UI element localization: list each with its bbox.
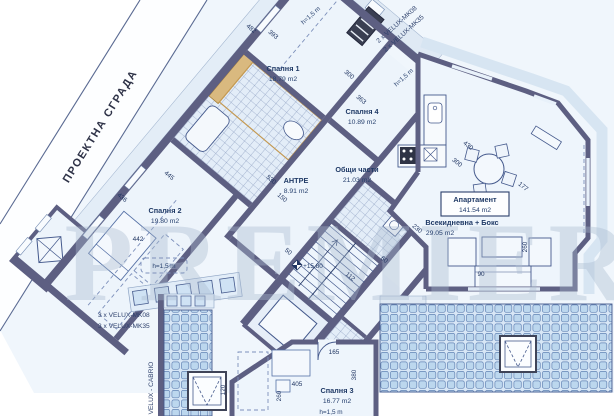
bedroom2-area: 19.80 m2 bbox=[151, 218, 180, 225]
dim-260b: 260 bbox=[276, 390, 283, 401]
floor-plan-page: ПРОЕКТНА СГРАДА bbox=[0, 0, 614, 416]
entry-name: АНТРЕ bbox=[284, 176, 309, 185]
dining-table bbox=[474, 154, 504, 184]
living-area: 29.05 m2 bbox=[426, 230, 455, 237]
living-name: Всекидневна + Бокс bbox=[425, 218, 498, 227]
bedroom1-area: 18.79 m2 bbox=[269, 76, 298, 83]
height-note-4: h=1,5 m bbox=[319, 409, 342, 416]
apartment-name: Апартамент bbox=[453, 195, 497, 204]
skylight-south bbox=[500, 336, 536, 372]
bedroom2-name: Спалня 2 bbox=[148, 206, 181, 215]
dresser bbox=[272, 350, 310, 376]
bedroom3-area: 16.77 m2 bbox=[323, 398, 352, 405]
dim-405: 405 bbox=[292, 381, 303, 388]
bedroom3-name: Спалня 3 bbox=[320, 386, 353, 395]
bay-skylight bbox=[37, 237, 63, 263]
dim-260a: 260 bbox=[522, 241, 529, 252]
nightstand bbox=[276, 380, 290, 392]
velux-left-label-1: 3 x VELUX-MK08 bbox=[98, 312, 150, 319]
common-area: 21.03 m2 bbox=[343, 177, 372, 184]
height-note-3: h=1,5 m bbox=[152, 263, 175, 270]
bedroom4-name: Спалня 4 bbox=[345, 107, 379, 116]
bedroom4-area: 10.89 m2 bbox=[348, 119, 377, 126]
velux-cabrio-label: VELUX - CABRIO bbox=[148, 362, 155, 415]
chair bbox=[465, 148, 480, 163]
dim-380: 380 bbox=[351, 369, 358, 380]
dim-90: 90 bbox=[477, 271, 485, 278]
bedroom1-name: Спалня 1 bbox=[266, 64, 299, 73]
chair bbox=[495, 144, 509, 158]
watermark: PREMIER bbox=[65, 201, 614, 325]
dim-165: 165 bbox=[329, 349, 340, 356]
apartment-area: 141.54 m2 bbox=[459, 207, 491, 214]
dim-120: 120 bbox=[220, 384, 227, 395]
stove bbox=[400, 147, 416, 164]
dim-442: 442 bbox=[133, 236, 144, 243]
floor-plan-canvas: ПРОЕКТНА СГРАДА bbox=[0, 0, 614, 416]
common-name: Общи части bbox=[335, 165, 378, 174]
velux-left-label-2: 3 x VELUX-MK35 bbox=[98, 323, 150, 330]
entry-area: 8.91 m2 bbox=[284, 188, 309, 195]
level-value: +15.80 bbox=[303, 263, 323, 270]
